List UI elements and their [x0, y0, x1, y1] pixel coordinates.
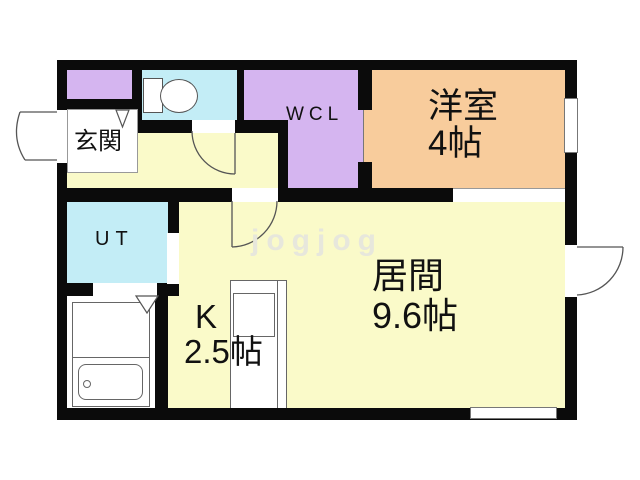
label-kitchen-size: 2.5帖: [184, 334, 263, 369]
room-wcl-lower: [288, 120, 363, 188]
sliding-door-western-living: [453, 188, 565, 202]
bathtub-drain: [83, 380, 91, 388]
label-kitchen-name: K: [195, 299, 263, 334]
window-living-bottom: [470, 407, 557, 419]
label-kitchen: K 2.5帖: [184, 299, 263, 369]
wall-wcl-notch: [278, 120, 288, 190]
entrance-door-arc: [16, 112, 25, 160]
bath-divider-line: [73, 357, 149, 358]
kitchen-door-gap: [232, 188, 278, 202]
label-entrance: 玄関: [74, 130, 122, 154]
label-western-room: 洋室 4帖: [428, 88, 498, 162]
living-door-gap: [565, 245, 577, 297]
wall-outer-top: [57, 60, 577, 70]
kitchen-counter-line: [277, 281, 278, 408]
floor-plan: 玄関 WCL 洋室 4帖 UT K 2.5帖 居間 9.6帖 jogjog: [0, 0, 640, 480]
label-living-room-size: 9.6帖: [372, 296, 458, 336]
watermark: jogjog: [251, 224, 383, 258]
wall-closet-bottom: [67, 99, 142, 109]
label-utility: UT: [95, 229, 134, 249]
wall-wcl-right-upper: [358, 70, 372, 110]
toilet-bowl: [160, 79, 198, 113]
utility-opening: [167, 233, 179, 284]
label-western-room-name: 洋室: [428, 88, 498, 125]
label-wcl: WCL: [286, 105, 343, 124]
wcl-western-opening-line: [363, 110, 364, 162]
wall-utility-right: [168, 202, 179, 233]
label-western-room-size: 4帖: [428, 125, 498, 162]
wall-bathroom-right: [155, 296, 168, 408]
label-living-room-name: 居間: [372, 256, 458, 296]
toilet-door-gap: [192, 120, 235, 133]
label-living-room: 居間 9.6帖: [372, 256, 458, 336]
living-door-arc: [577, 247, 623, 295]
entrance-door-gap: [57, 110, 67, 163]
room-entrance-closet: [67, 70, 132, 99]
window-western-right: [564, 98, 578, 153]
bathroom-door-gap: [93, 283, 157, 296]
